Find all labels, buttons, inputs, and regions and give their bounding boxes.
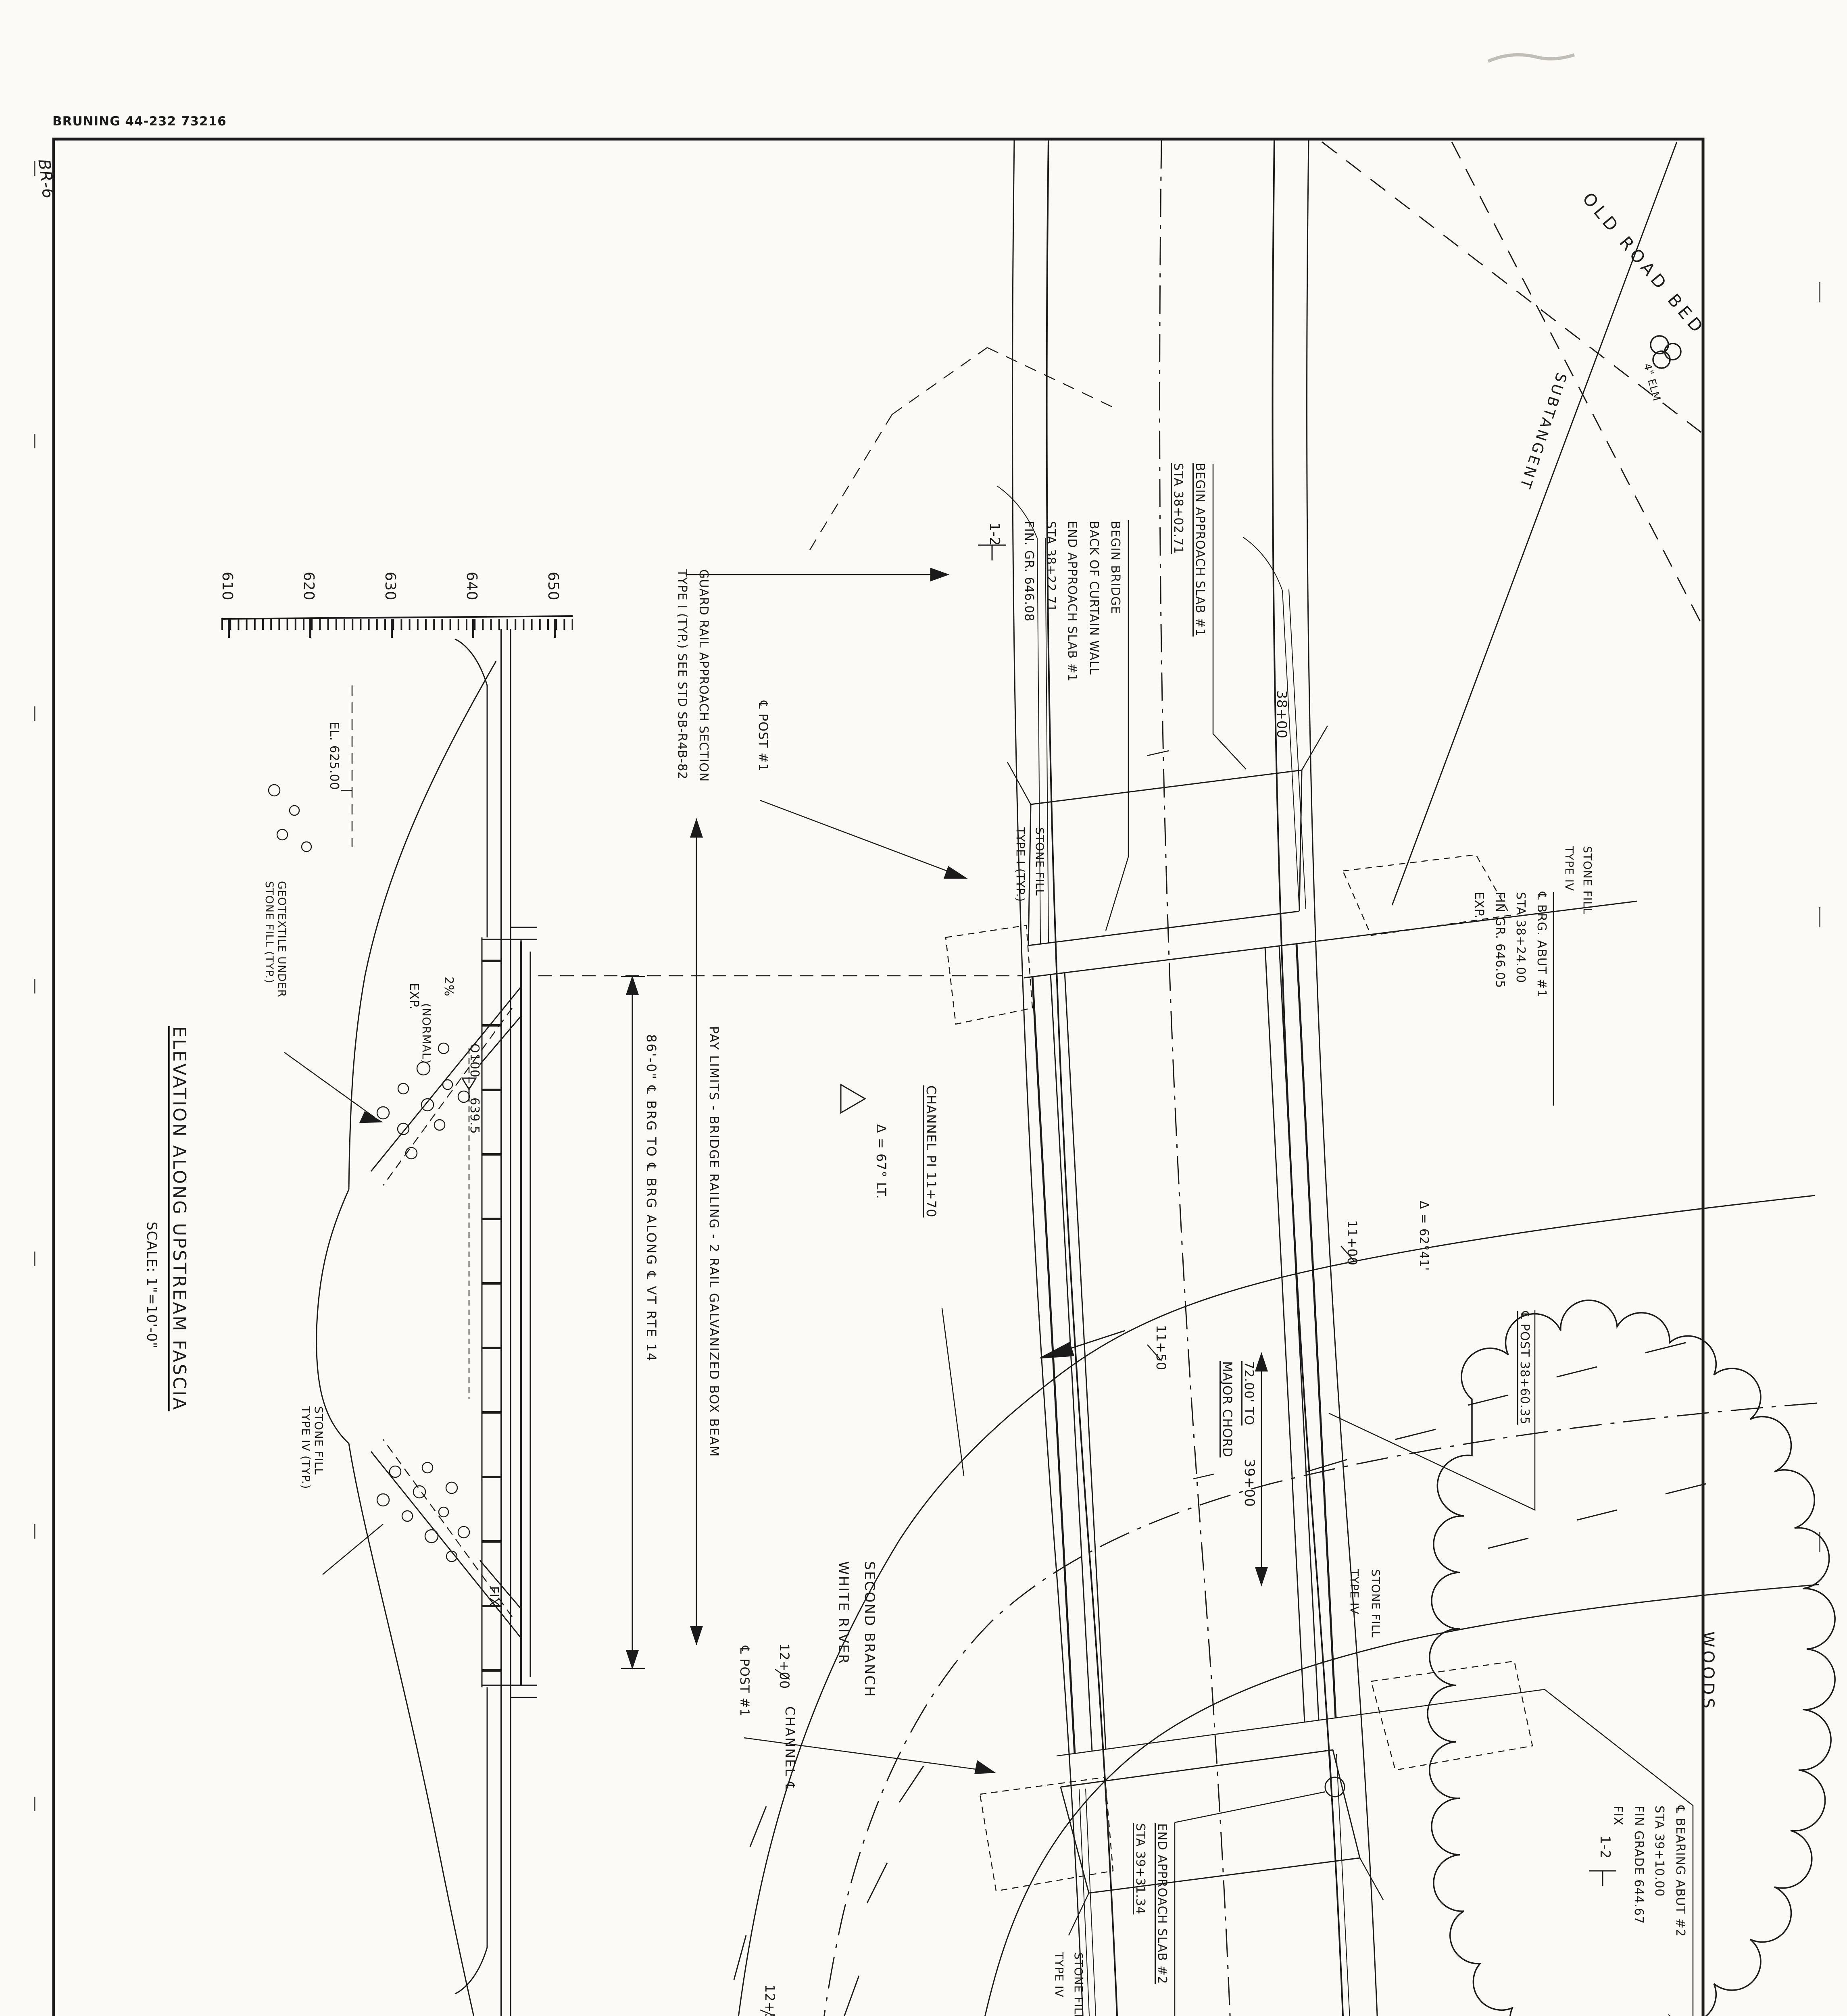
label-sta-12-00: 12+00 [777,1643,792,1689]
ruler-tick-630: 630 [382,572,398,601]
label-post1-top: ℄ POST #1 [756,701,770,772]
ruler-tick-640: 640 [463,572,480,601]
she et-border [35,55,1820,2016]
label-q100-elev: 639.5 [467,1098,482,1134]
elevation-title: ELEVATION ALONG UPSTREAM FASCIA [169,1026,190,1411]
label-channel-cl: CHANNEL ℄ [782,1706,798,1792]
label-begin-bridge: BEGIN BRIDGE BACK OF CURTAIN WALL END AP… [1018,521,1126,682]
drawing-sheet: BRUNING 44-232 73216 BR-6 610 620 630 64… [0,0,1847,2016]
label-q100: Q100 [467,1043,482,1078]
label-post1-bottom: ℄ POST #1 [737,1646,752,1717]
label-stone-fill-sw: STONE FILL TYPE IV [1050,1952,1088,2016]
label-sta-11-00: 11+00 [1345,1220,1360,1266]
label-major-chord: 72.00' TO MAJOR CHORD [1216,1361,1260,1458]
label-channel-pi: CHANNEL PI 11+70 [923,1085,939,1218]
label-sta-11-50: 11+50 [1153,1325,1169,1370]
label-slope-1-2-a: 1-2 [986,523,1003,546]
label-begin-approach-slab-1: BEGIN APPROACH SLAB #1 STA 38+02.71 [1167,463,1211,637]
woods-outline [1217,336,1835,2016]
label-sta-12-50: 12+50 [762,1985,778,2016]
plan-view [710,140,1835,2016]
ruler-tick-650: 650 [545,572,561,601]
label-stone-fill-mid: STONE FILL TYPE IV [1344,1569,1386,1638]
label-sta-39: 39+00 [1241,1459,1257,1507]
print-stamp: BRUNING 44-232 73216 [52,114,227,129]
label-stone-fill-ne: STONE FILL TYPE IV [1560,846,1596,914]
label-post-38-60: ℄ POST 38+60.35 [1518,1311,1532,1425]
label-exp-elev: EXP. [407,983,421,1010]
label-stone-fill-type1: STONE FILL TYPE I (TYP.) [1011,827,1049,902]
ruler-tick-610: 610 [219,572,236,601]
label-geotextile: GEOTEXTILE UNDER STONE FILL (TYP.) [263,881,288,998]
label-woods-east: WOODS [1699,1631,1717,1712]
label-stone-fill-elev: STONE FILL TYPE IV (TYP.) [299,1406,325,1489]
label-bearing-abut-2: ℄ BEARING ABUT #2 STA 39+10.00 FIN GRADE… [1607,1806,1691,1937]
label-sta-38: 38+00 [1274,690,1290,739]
road-centerline [1160,140,1243,2016]
label-slope-note: (NORMAL) [420,1003,433,1064]
label-guard-rail-note: GUARD RAIL APPROACH SECTION TYPE I (TYP.… [671,569,714,782]
label-brg-dimension: 86'-0" ℄ BRG TO ℄ BRG ALONG ℄ VT RTE 14 [644,1034,659,1362]
label-fix-elev: FIX [487,1586,501,1606]
stone-fill-rubble [269,785,469,2016]
label-slope: 2% [442,977,456,997]
label-river-name: SECOND BRANCH WHITE RIVER [830,1561,882,1698]
elevation-scale: SCALE: 1"=10'-0" [144,1222,160,1349]
drawing-linework [0,0,1847,2016]
label-delta-67: Δ = 67° LT. [873,1124,889,1199]
label-brg-abut-1: ℄ BRG. ABUT #1 STA 38+24.00 FIN GR. 646.… [1469,892,1552,998]
label-el-625-top: EL. 625.00 [327,722,341,790]
label-end-approach-slab-2: END APPROACH SLAB #2 STA 39+31.34 [1129,1823,1173,1984]
label-delta-62: Δ = 62°41' [1417,1201,1431,1271]
ruler-tick-620: 620 [300,572,317,601]
label-pay-limits: PAY LIMITS - BRIDGE RAILING - 2 RAIL GAL… [707,1026,721,1457]
